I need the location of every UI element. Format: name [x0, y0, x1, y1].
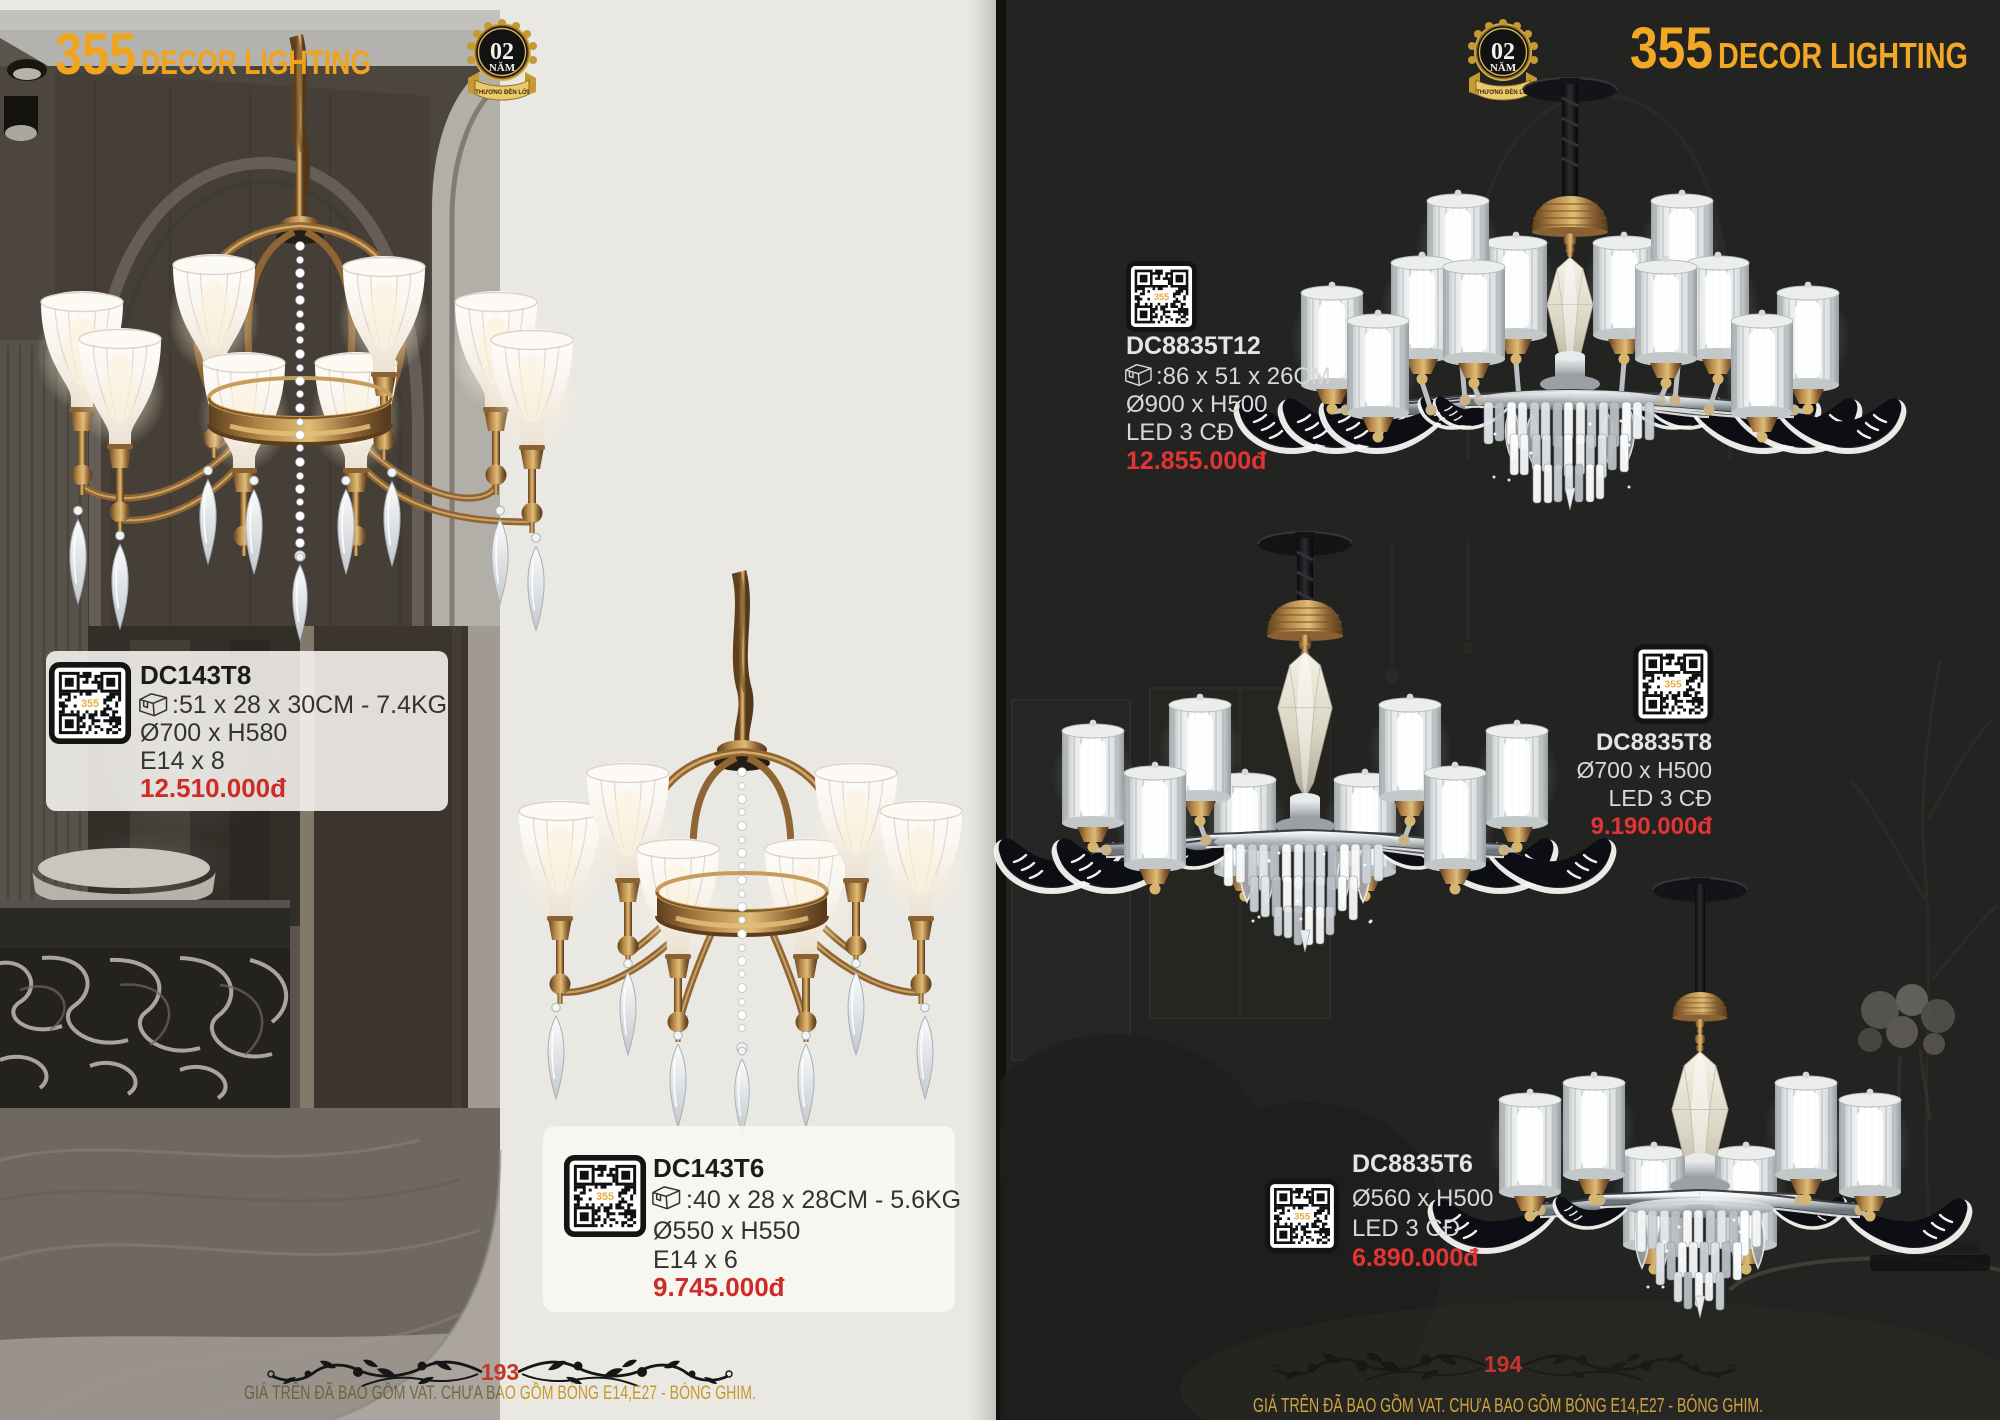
svg-text:9.190.000đ: 9.190.000đ — [1591, 813, 1713, 840]
svg-text:355: 355 — [1294, 1211, 1311, 1222]
svg-text:LED 3 CĐ: LED 3 CĐ — [1352, 1215, 1460, 1242]
svg-text:E14 x 8: E14 x 8 — [140, 747, 225, 775]
svg-text:Ø560 x H500: Ø560 x H500 — [1352, 1185, 1493, 1212]
svg-text:355: 355 — [1630, 16, 1713, 81]
svg-text:GIÁ TRÊN ĐÃ BAO GỒM VAT. CHƯA: GIÁ TRÊN ĐÃ BAO GỒM VAT. CHƯA BAO GỒM BÓ… — [1253, 1393, 1763, 1417]
svg-text:355: 355 — [596, 1191, 614, 1203]
svg-text:Ø900 x H500: Ø900 x H500 — [1126, 391, 1267, 418]
svg-text:355: 355 — [1664, 680, 1682, 691]
svg-text:LED 3 CĐ: LED 3 CĐ — [1608, 785, 1712, 811]
svg-text:Ø700 x H500: Ø700 x H500 — [1576, 757, 1712, 783]
svg-text:6.890.000đ: 6.890.000đ — [1352, 1244, 1479, 1272]
svg-text:194: 194 — [1484, 1351, 1523, 1377]
svg-text:LED 3 CĐ: LED 3 CĐ — [1126, 419, 1234, 446]
svg-text:9.745.000đ: 9.745.000đ — [653, 1272, 785, 1302]
svg-text:DC143T6: DC143T6 — [653, 1153, 764, 1183]
svg-text:355: 355 — [55, 22, 136, 87]
svg-text:DC8835T12: DC8835T12 — [1126, 332, 1261, 360]
svg-text:Ø700 x H580: Ø700 x H580 — [140, 719, 287, 747]
svg-text::86 x 51 x 26CM: :86 x 51 x 26CM — [1156, 363, 1331, 390]
svg-text:355: 355 — [81, 698, 99, 710]
svg-text:193: 193 — [481, 1359, 519, 1385]
svg-text::51 x 28 x 30CM - 7.4KG: :51 x 28 x 30CM - 7.4KG — [172, 691, 447, 719]
svg-text:DECOR LIGHTING: DECOR LIGHTING — [141, 44, 371, 82]
svg-text:E14 x 6: E14 x 6 — [653, 1246, 738, 1274]
svg-text::40 x 28 x 28CM - 5.6KG: :40 x 28 x 28CM - 5.6KG — [686, 1186, 961, 1214]
svg-text:DC8835T6: DC8835T6 — [1352, 1150, 1473, 1178]
svg-text:12.510.000đ: 12.510.000đ — [140, 773, 286, 803]
svg-text:DC8835T8: DC8835T8 — [1596, 729, 1712, 756]
svg-text:12.855.000đ: 12.855.000đ — [1126, 447, 1267, 475]
svg-text:Ø550 x H550: Ø550 x H550 — [653, 1217, 800, 1245]
svg-text:355: 355 — [1154, 292, 1169, 302]
svg-text:DECOR LIGHTING: DECOR LIGHTING — [1718, 35, 1968, 76]
svg-text:DC143T8: DC143T8 — [140, 660, 251, 690]
